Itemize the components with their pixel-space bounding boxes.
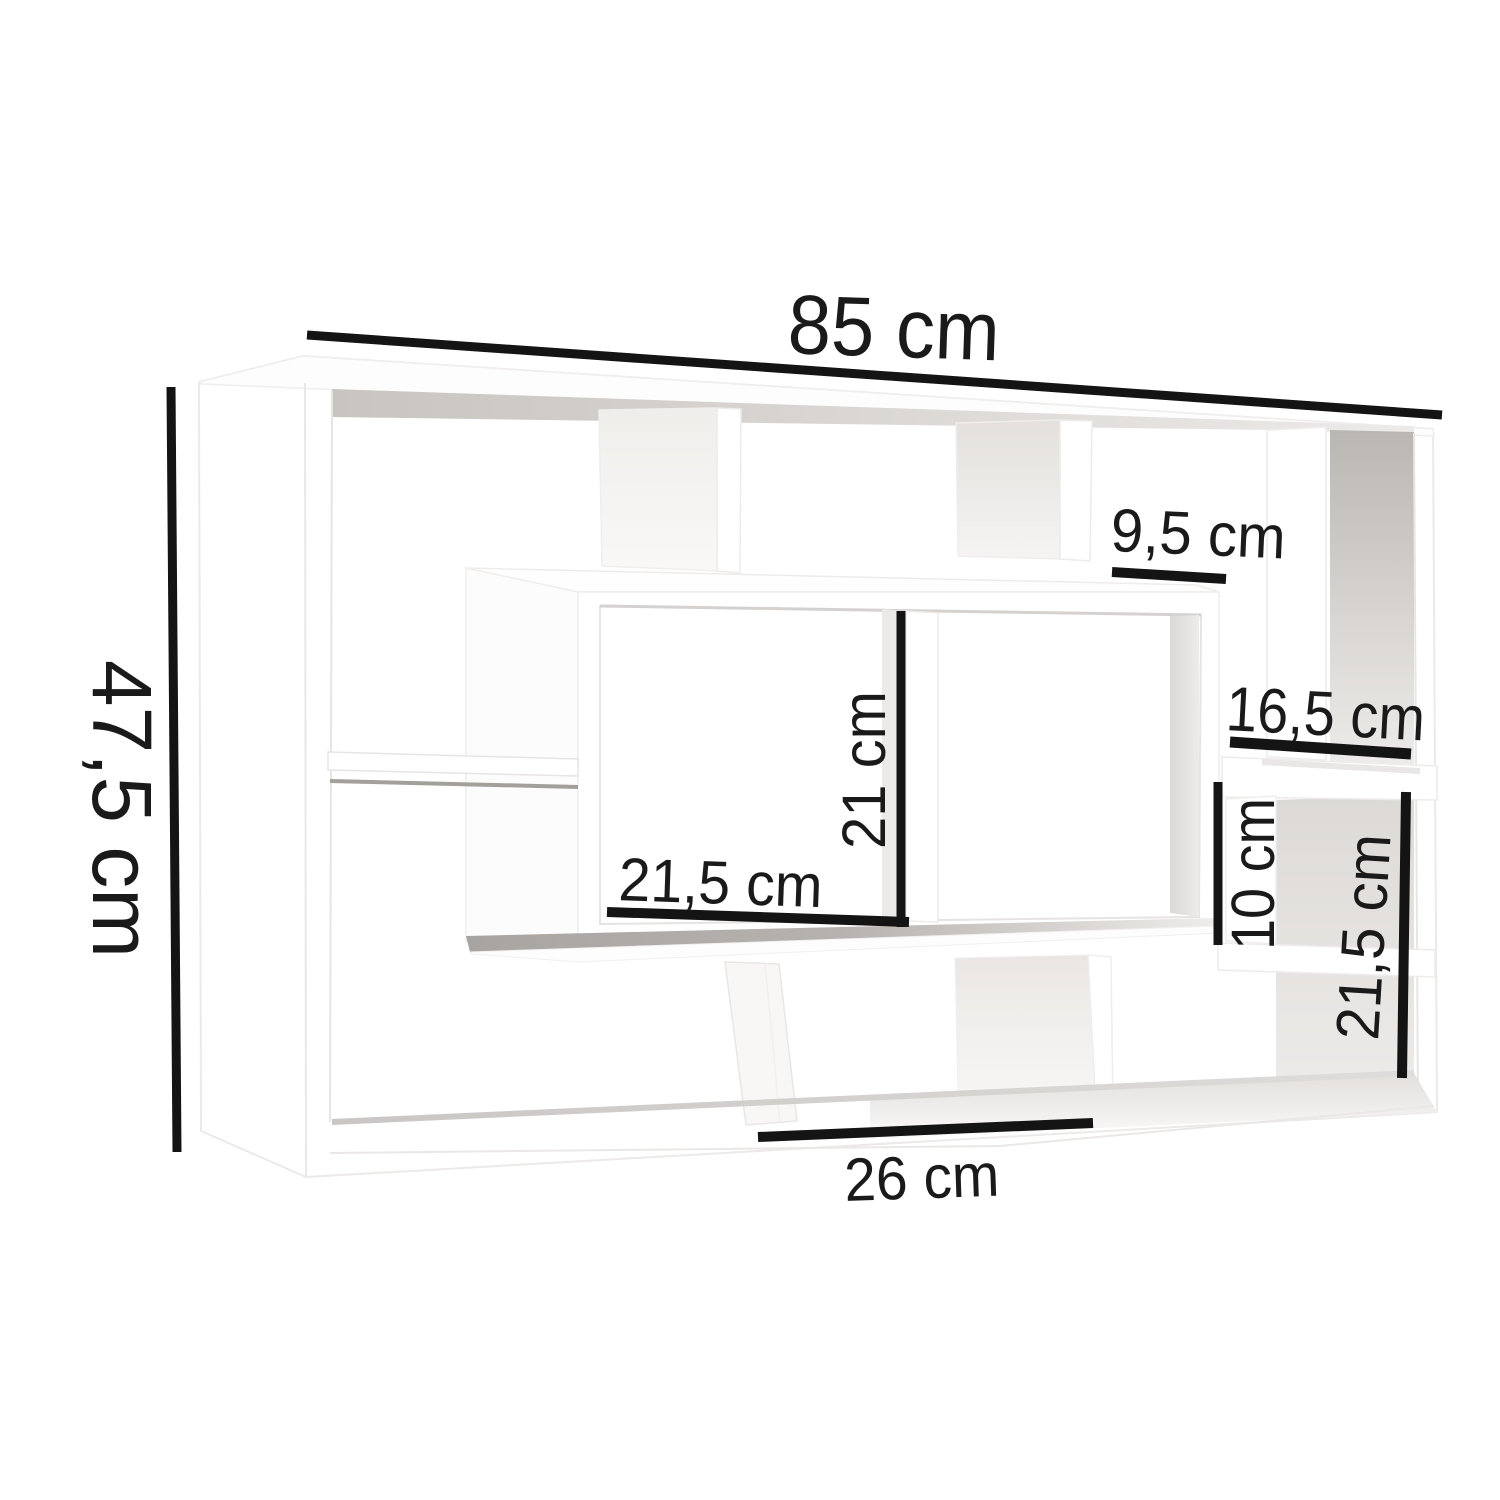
svg-text:21,5 cm: 21,5 cm — [618, 845, 824, 920]
svg-text:16,5 cm: 16,5 cm — [1224, 674, 1426, 754]
svg-text:21 cm: 21 cm — [830, 691, 898, 849]
svg-text:10 cm: 10 cm — [1219, 798, 1287, 950]
svg-text:47,5 cm: 47,5 cm — [75, 660, 169, 958]
svg-text:21,5 cm: 21,5 cm — [1323, 832, 1403, 1042]
svg-text:9,5 cm: 9,5 cm — [1109, 496, 1287, 572]
svg-text:26 cm: 26 cm — [843, 1141, 1000, 1214]
svg-text:85 cm: 85 cm — [786, 277, 1001, 378]
